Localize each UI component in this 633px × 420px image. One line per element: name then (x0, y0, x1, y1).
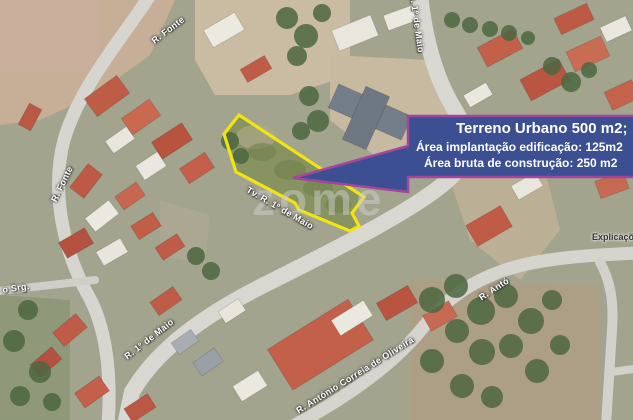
listing-map-image: zome R. Fonte R. Fonte R. 1º de Maio Tv.… (0, 0, 633, 420)
callout-title: Terreno Urbano 500 m2; (456, 120, 627, 137)
place-label-explicacao: Explicaçõ (592, 232, 633, 242)
callout-implantation-area: Área implantação edificação: 125m2 (416, 141, 623, 155)
callout-gross-construction-area: Área bruta de construção: 250 m2 (424, 157, 617, 171)
